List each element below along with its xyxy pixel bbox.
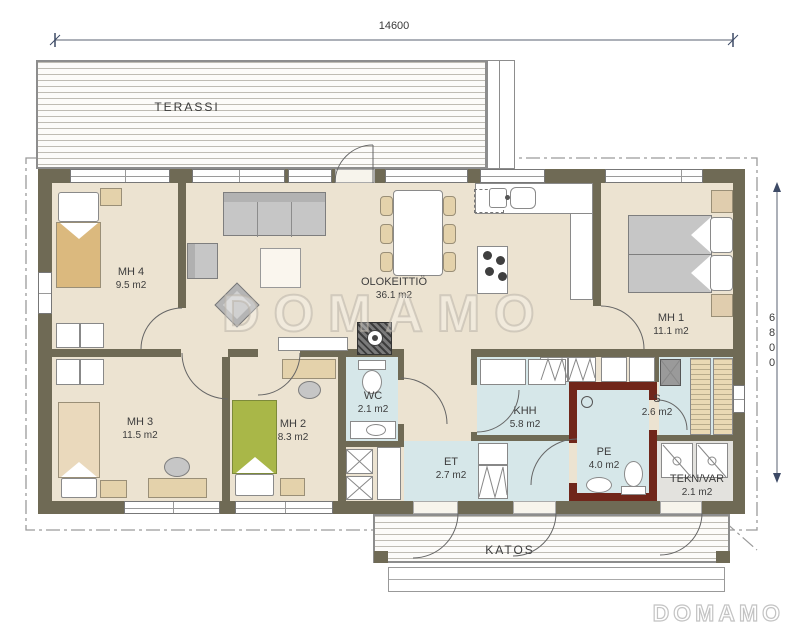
- zigzag-closet-a: [541, 359, 567, 380]
- door-arc-terrace: [335, 145, 373, 183]
- door-arc-mh3: [182, 353, 228, 399]
- door-arc-mh1: [601, 306, 644, 349]
- floor-plan: TERASSI KATOS MH 49.5 m2 MH 311.5 m2 MH …: [0, 0, 800, 635]
- dim-arrow-bottom: [773, 473, 781, 483]
- sauna-stove-x: [661, 360, 680, 385]
- x-closet-a: [347, 450, 372, 473]
- door-arc-sauna: [657, 400, 687, 430]
- zigzag-closet-et: [479, 467, 507, 497]
- door-arc-entry: [413, 513, 458, 558]
- door-arc-khh-exterior: [513, 513, 556, 556]
- brand-logo: DOMAMO: [653, 600, 784, 627]
- door-arc-mh2: [258, 353, 300, 395]
- door-arc-khh: [477, 390, 519, 432]
- dryer-diagonal: [698, 445, 726, 477]
- door-arcs: [141, 145, 702, 558]
- door-arc-tekn: [660, 513, 702, 555]
- zigzag-closet-b: [569, 359, 595, 380]
- closet-symbols: [347, 359, 726, 499]
- door-arc-mh4: [141, 308, 182, 349]
- washer-diagonal: [663, 445, 691, 477]
- dim-arrow-top: [773, 182, 781, 192]
- door-arc-pe: [531, 439, 577, 485]
- watermark: DOMAMO: [222, 284, 549, 344]
- dimension-lines: [50, 33, 781, 483]
- door-arc-wc: [401, 378, 447, 424]
- x-closet-b: [347, 477, 372, 499]
